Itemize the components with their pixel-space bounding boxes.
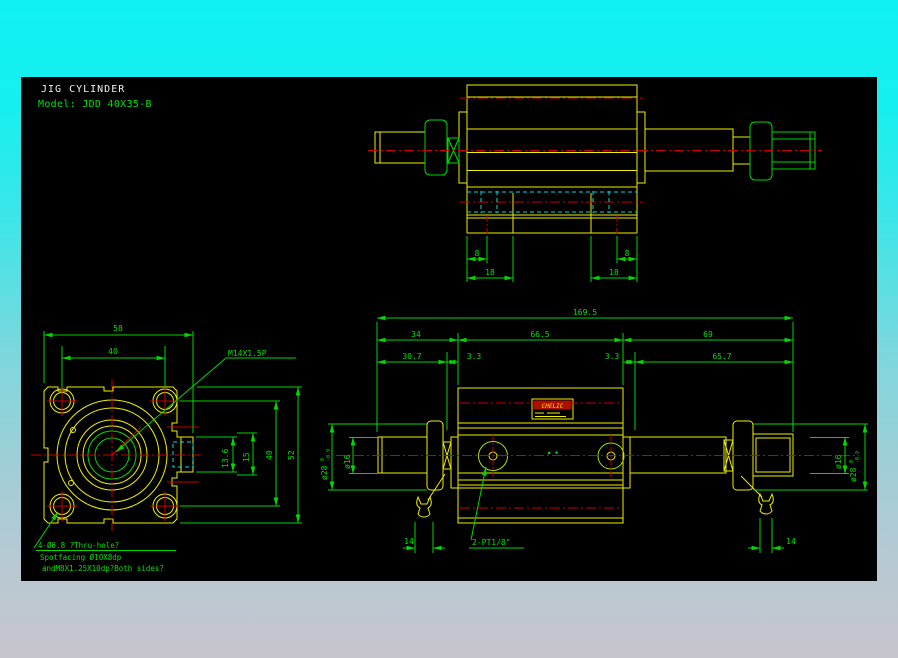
top-view-dimensions: 8 8 18 18 [467,236,637,282]
top-view: 8 8 18 18 [368,85,822,282]
dim-total-length: 169.5 [573,308,597,317]
dim-foot-width-right: 18 [609,268,619,277]
dim-gap-right: 3.3 [605,352,620,361]
dim-rod-dia-left: ø16 [343,454,352,469]
top-view-body [459,85,645,233]
cad-drawing-canvas: JIG CYLINDER Model: JDD 40X35-B [21,77,877,581]
port-label: 2-PT1/8" [472,538,511,547]
svg-text:15: 15 [242,452,251,462]
svg-text:ø16: ø16 [343,454,352,469]
cad-drawing: JIG CYLINDER Model: JDD 40X35-B [21,77,877,581]
wrench-icon [759,494,774,514]
dim-left-rod: 30.7 [402,352,421,361]
svg-text:52: 52 [287,450,296,460]
svg-text:40: 40 [265,450,274,460]
wrench-icon [417,497,432,517]
svg-text:ø16: ø16 [834,454,843,469]
dim-wrench-left: 14 [404,537,414,546]
side-view: CHELIC 169.5 [320,308,868,553]
dim-foot-width-left: 18 [485,268,495,277]
svg-text:-0.9: -0.9 [855,451,861,463]
title-block: JIG CYLINDER Model: JDD 40X35-B [38,84,152,110]
dim-bolt-spacing-v: 40 [265,450,274,460]
dim-right-section: 69 [703,330,713,339]
brand-label: CHELIC [542,403,564,410]
side-view-dimensions: 169.5 34 66.5 69 30.7 3.3 3.3 65.7 ø28 0 [320,308,868,553]
note-thru-hole: 4-Ø6.8 ?Thru-hole? [38,541,119,550]
dim-bolt-spacing-h: 40 [108,347,118,356]
dim-body-length: 66.5 [530,330,549,339]
side-view-label: CHELIC [532,399,573,419]
drawing-title: JIG CYLINDER [41,84,125,95]
dim-boss-dia-left: ø28 0 -0.9 [320,449,332,480]
dim-15: 15 [242,452,251,462]
front-view: 58 40 M14X1.5P 13.6 15 [31,324,302,573]
dim-boss-dia-right: ø28 0 -0.9 [849,451,861,482]
dim-body-width: 58 [113,324,123,333]
dim-wrench-right: 14 [786,537,796,546]
svg-text:ø28: ø28 [849,467,858,482]
dim-gap-left: 3.3 [467,352,482,361]
note-spotfacing: Spotfacing Ø10X8dp [40,553,122,562]
body-mark-dot [548,452,551,455]
dim-hole-offset-left: 8 [475,249,480,258]
dim-body-height: 52 [287,450,296,460]
body-mark-dot [555,451,558,454]
drawing-model: Model: JDD 40X35-B [38,99,152,110]
page-background: { "title": "JIG CYLINDER", "model": "Mod… [0,0,898,658]
side-view-centerlines [336,403,858,508]
svg-text:13.6: 13.6 [221,449,230,468]
dim-13-6: 13.6 [221,449,230,468]
svg-text:ø28: ø28 [320,465,329,480]
dim-left-section: 34 [411,330,421,339]
dim-rod-dia-right: ø16 [834,454,843,469]
thread-label: M14X1.5P [228,349,267,358]
front-view-dimensions: 58 40 M14X1.5P 13.6 15 [34,324,302,573]
svg-text:-0.9: -0.9 [326,449,332,461]
dim-right-rod: 65.7 [712,352,731,361]
dim-hole-offset-right: 8 [625,249,630,258]
note-thread-depth: andM8X1.25X10dp?Both sides? [42,564,164,573]
